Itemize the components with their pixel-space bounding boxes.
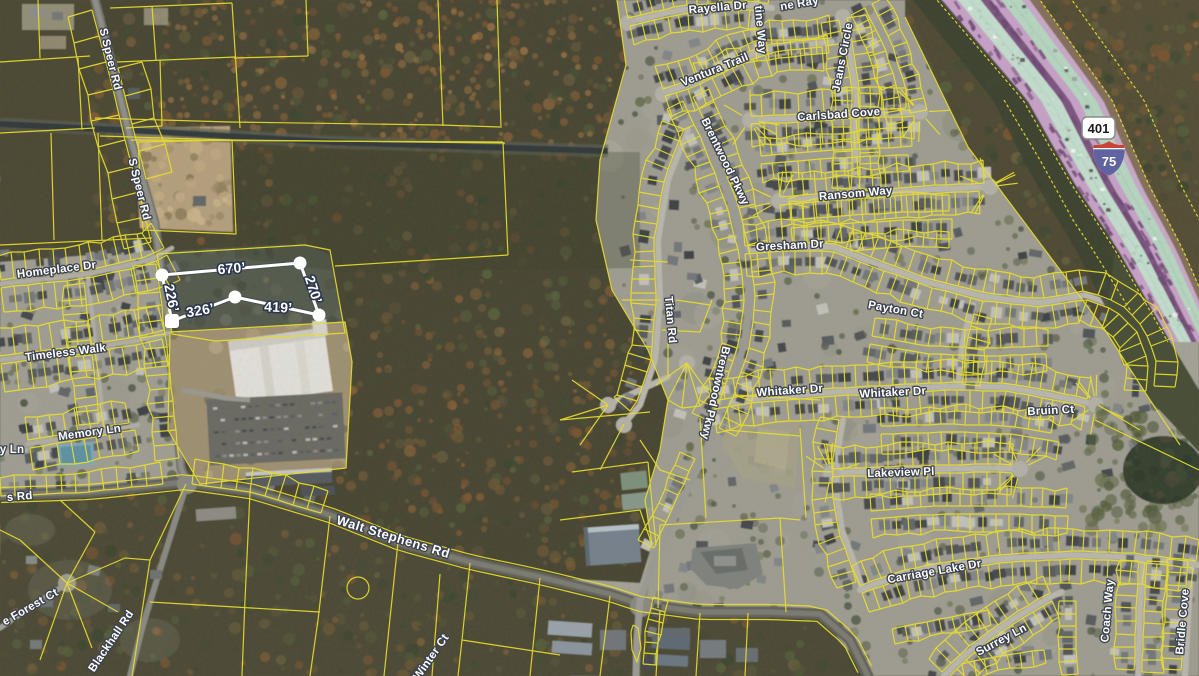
svg-text:670’: 670’	[217, 259, 246, 277]
svg-text:Lakeview Pl: Lakeview Pl	[867, 466, 935, 480]
svg-text:y Ln: y Ln	[0, 444, 24, 456]
svg-text:Bruin Ct: Bruin Ct	[1027, 404, 1075, 418]
svg-text:s Rd: s Rd	[6, 490, 33, 504]
